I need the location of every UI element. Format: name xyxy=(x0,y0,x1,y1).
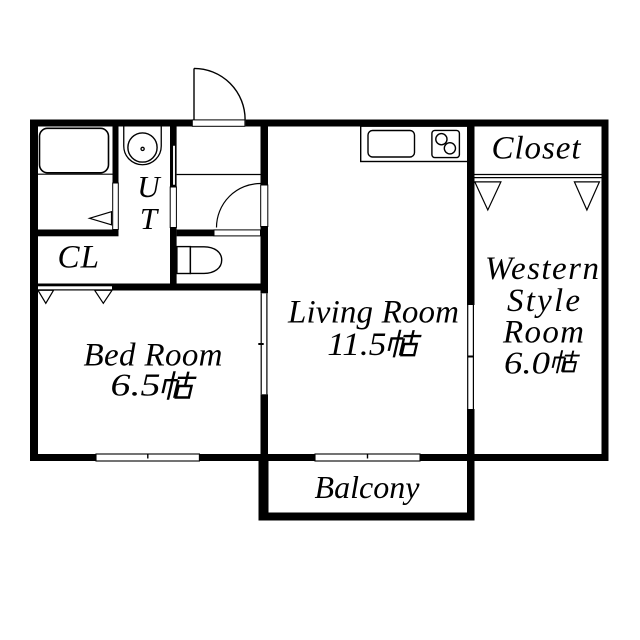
svg-text:6.0: 6.0 xyxy=(504,345,550,381)
svg-text:Western: Western xyxy=(485,251,599,287)
svg-text:U: U xyxy=(137,169,162,204)
svg-text:Living Room: Living Room xyxy=(287,295,459,331)
svg-text:11.5: 11.5 xyxy=(327,327,386,363)
svg-text:CL: CL xyxy=(58,240,100,276)
svg-text:Balcony: Balcony xyxy=(315,469,421,505)
svg-text:Closet: Closet xyxy=(492,130,582,166)
svg-text:6.5: 6.5 xyxy=(111,367,161,403)
svg-text:T: T xyxy=(140,201,160,236)
